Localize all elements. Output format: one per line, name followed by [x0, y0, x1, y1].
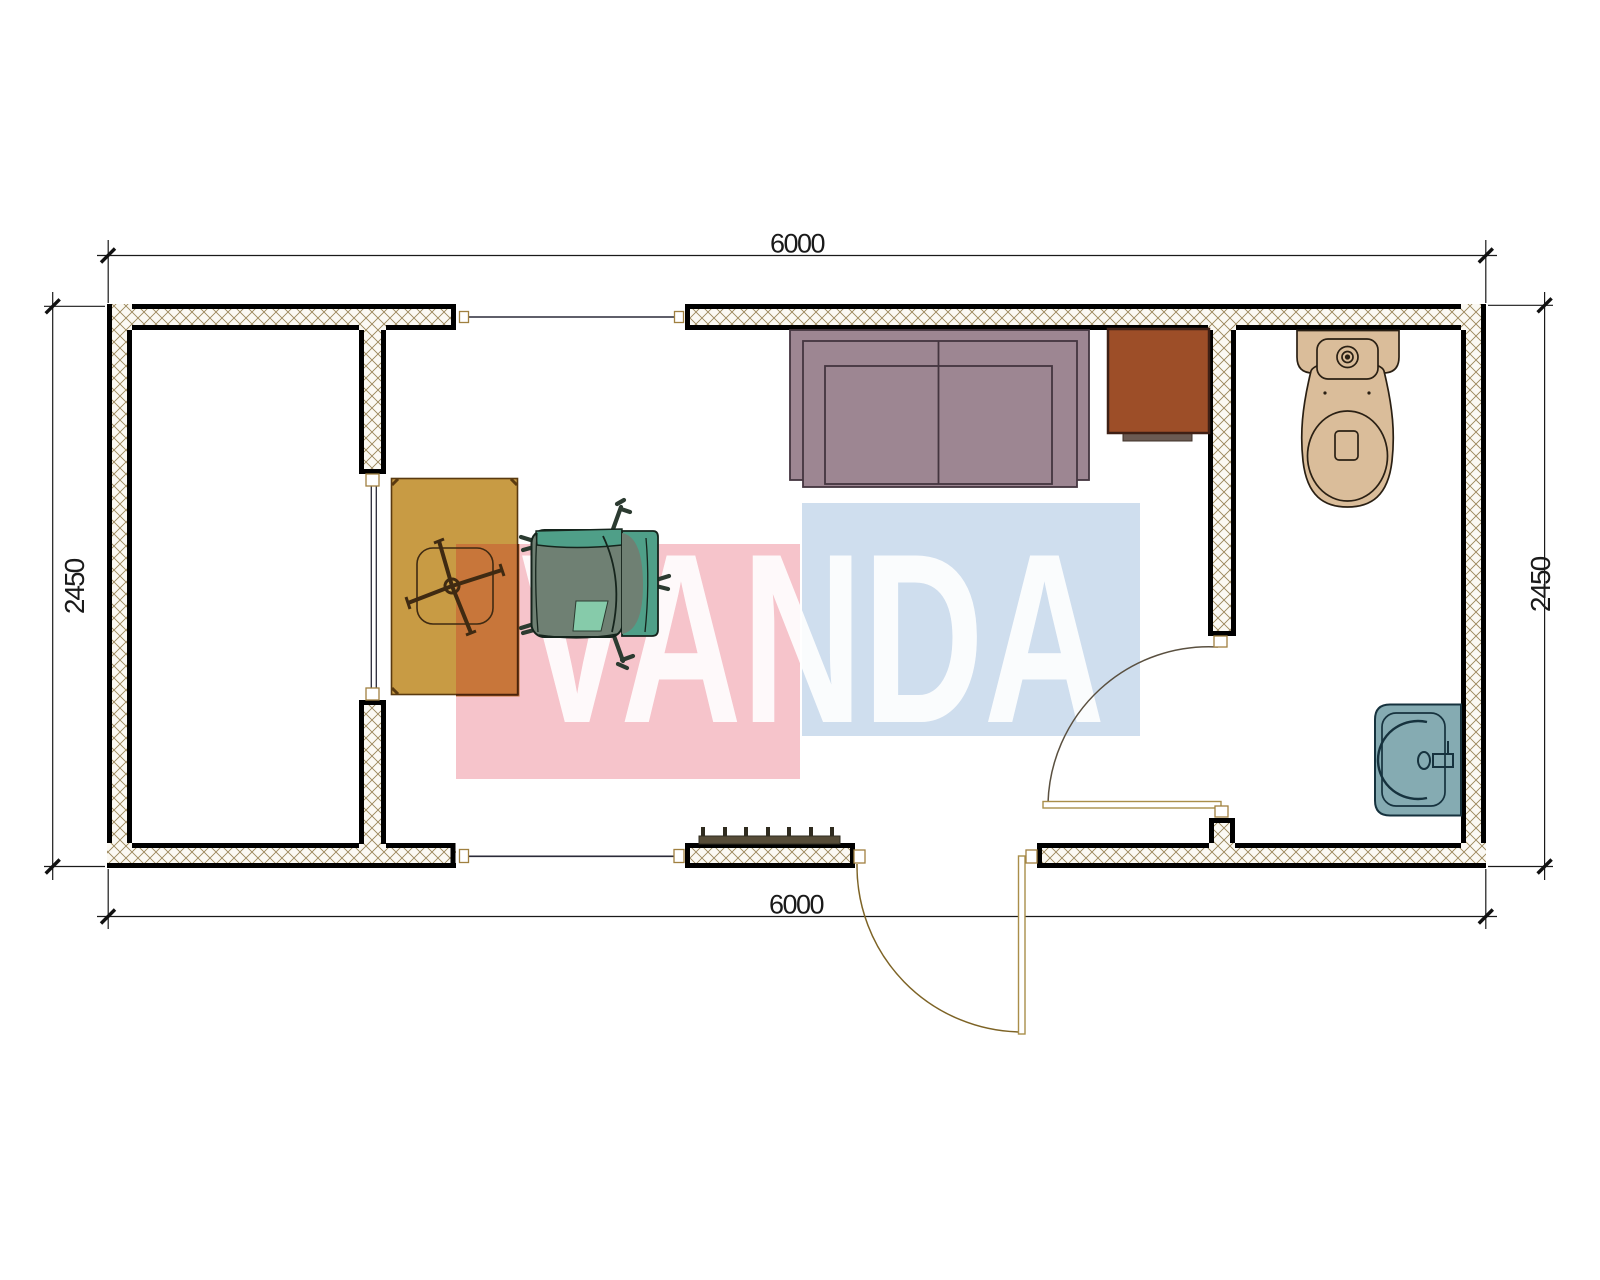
svg-text:6000: 6000 — [769, 890, 824, 920]
svg-text:2450: 2450 — [59, 558, 90, 614]
svg-text:2450: 2450 — [1525, 556, 1556, 612]
svg-text:6000: 6000 — [770, 229, 825, 259]
